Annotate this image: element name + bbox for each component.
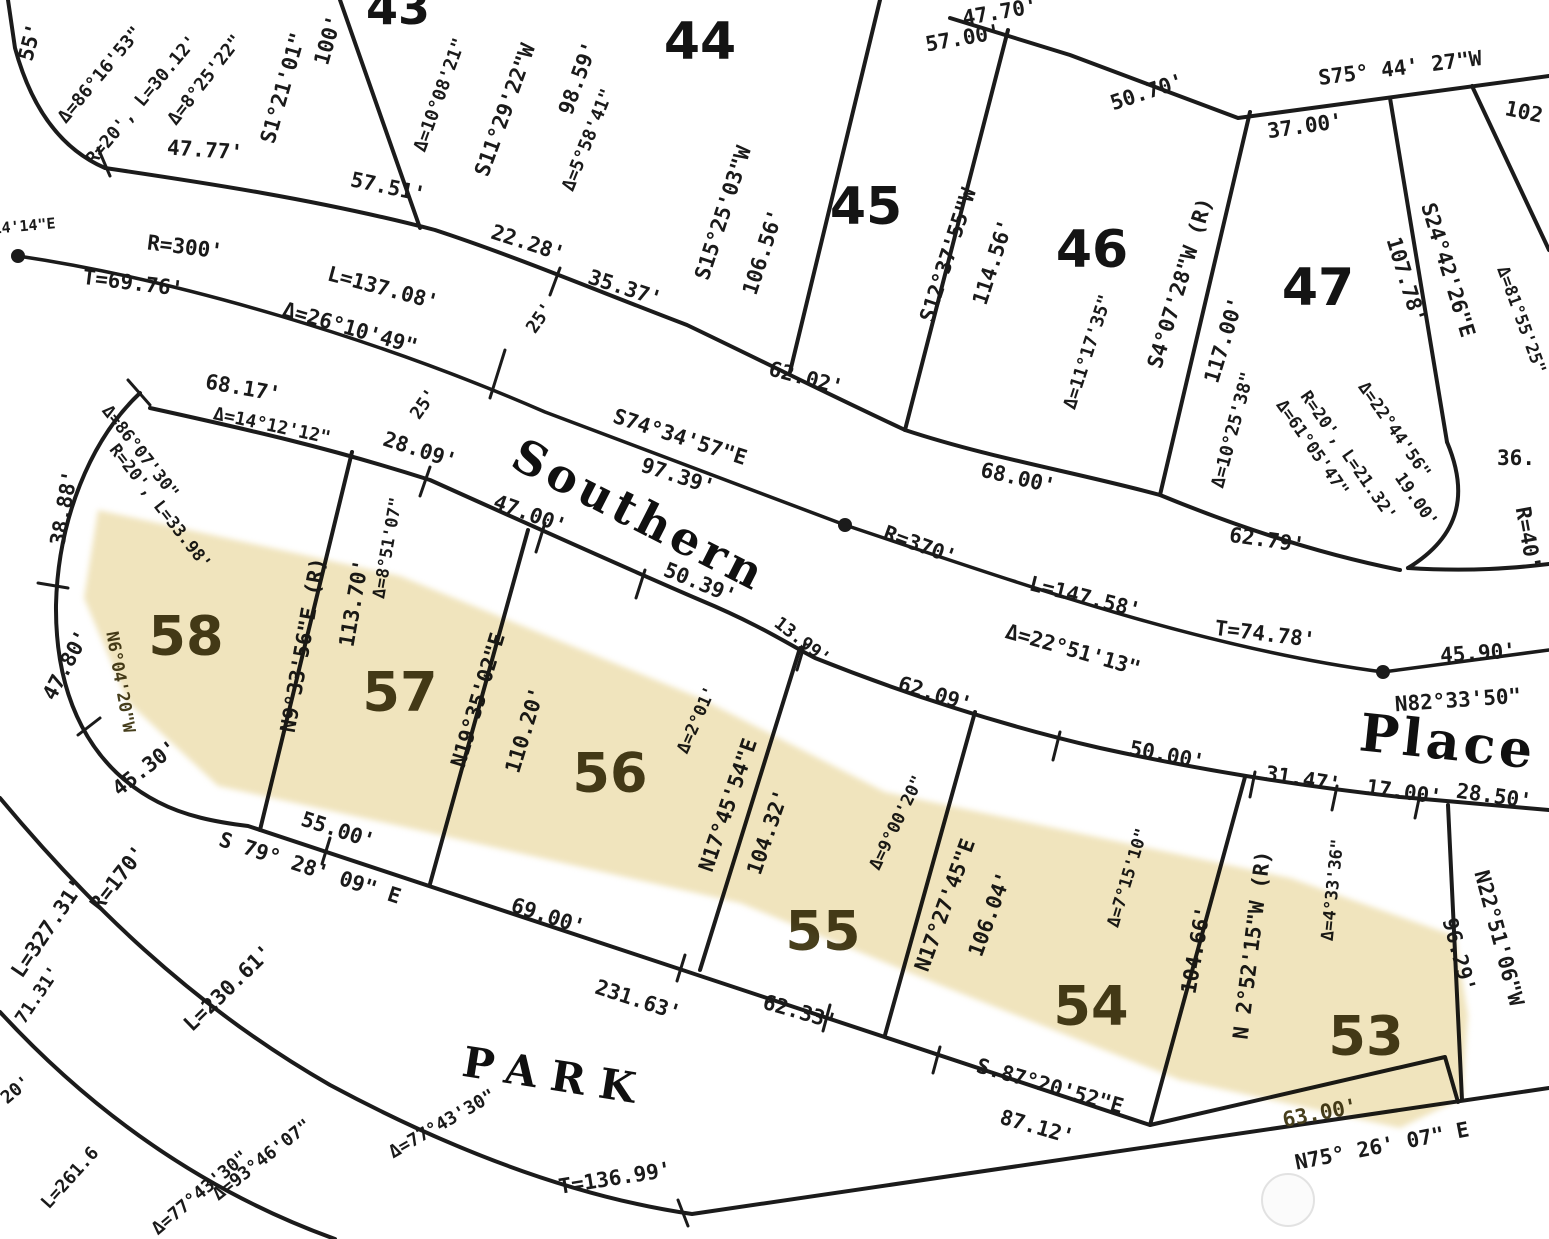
distance-label: 20' (0, 1072, 35, 1109)
distance-label: 68.17' (204, 370, 283, 407)
lot-number-47: 47 (1282, 258, 1354, 318)
distance-label: 106.56' (738, 206, 788, 298)
distance-label: 38.88' (46, 469, 83, 548)
curve-delta-label: Δ=22°51'13" (1003, 619, 1143, 680)
curve-data-label: L=230.61' (179, 940, 278, 1036)
curve-delta-label: Δ=26°10'49" (280, 297, 420, 358)
curve-delta-label: Δ=77°43'30" (385, 1085, 499, 1163)
curve-point-dot (838, 518, 852, 532)
bearing-label: S12°37'55"W (915, 185, 981, 325)
street-name: Place (1357, 702, 1540, 781)
distance-label: 231.63' (592, 975, 684, 1025)
distance-label: 28.50' (1455, 779, 1533, 813)
distance-label: 87.12' (997, 1105, 1077, 1149)
distance-label: 17.00' (1365, 775, 1443, 809)
curve-data-label: R=40' (1511, 505, 1546, 571)
scan-notch (1505, 895, 1549, 958)
curve-data-label: T=136.99' (557, 1157, 673, 1199)
distance-label: 57.51' (348, 167, 427, 206)
curve-data-label: L=137.08' (325, 262, 441, 315)
distance-label: 68.00' (978, 458, 1057, 498)
curve-delta-label: Δ=14°12'12" (212, 403, 333, 448)
curve-data-label: L=147.58' (1027, 572, 1143, 623)
plat-map-page: 55'Δ=86°16'53"R=20', L=30.12'Δ=8°25'22"S… (0, 0, 1549, 1239)
distance-label: 50.00' (1127, 736, 1206, 774)
distance-label: 45.90' (1439, 638, 1516, 667)
distance-label: 50.70' (1107, 69, 1187, 115)
watermark-circle (1262, 1174, 1314, 1226)
curve-data-label: R=370' (880, 521, 959, 569)
distance-label: 14'14"E (0, 214, 56, 237)
distance-label: 62.02' (766, 357, 845, 400)
curve-point-dot (1376, 665, 1390, 679)
distance-label: 45.30' (108, 735, 183, 801)
distance-label: 25' (406, 385, 442, 424)
distance-label: 62.09' (895, 671, 975, 716)
distance-label: 47.77' (166, 135, 243, 164)
bearing-label: S1°21'01" (256, 30, 310, 146)
distance-label: 35.37' (585, 265, 665, 311)
curve-delta-label: Δ=11°17'35" (1060, 292, 1117, 412)
curve-data-label: T=69.76' (81, 265, 184, 301)
lot-number-46: 46 (1056, 220, 1128, 280)
curve-delta-label: Δ=81°55'25" (1492, 264, 1549, 377)
bearing-label: S.87°20'52"E (974, 1054, 1126, 1119)
curve-delta-label: Δ=10°08'21" (410, 35, 471, 154)
curve-data-label: T=74.78' (1213, 616, 1316, 652)
distance-label: 57.00' (924, 20, 1003, 57)
bearing-label: S75° 44' 27"W (1317, 46, 1483, 90)
distance-label: 100' (309, 12, 346, 67)
curve-point-dot (11, 249, 25, 263)
distance-label: 102 (1503, 96, 1545, 127)
bearing-label: S11°29'22"W (470, 40, 540, 179)
bearing-label: N75° 26' 07" E (1293, 1117, 1471, 1174)
distance-label: 31.47' (1264, 761, 1343, 797)
lot-number-43: 43 (366, 0, 430, 35)
distance-label: 22.28' (488, 220, 568, 266)
plat-map: 55'Δ=86°16'53"R=20', L=30.12'Δ=8°25'22"S… (0, 0, 1549, 1239)
distance-label: 69.00' (508, 893, 588, 939)
curve-data-label: R=170' (85, 841, 151, 916)
distance-label: 13.99' (770, 613, 834, 670)
lot-number-45: 45 (830, 177, 902, 237)
distance-label: 62.33' (760, 990, 840, 1034)
bearing-label: S4°07'28"W (R) (1143, 195, 1218, 371)
curve-data-label: R=300' (146, 230, 224, 263)
curve-delta-label: Δ=10°25'38" (1207, 370, 1258, 491)
lot-number-44: 44 (664, 12, 736, 72)
distance-label: 36. (1497, 446, 1535, 470)
distance-label: 62.79' (1228, 523, 1306, 557)
bearing-label: S15°25'03"W (690, 143, 756, 283)
distance-label: 55' (13, 21, 46, 64)
curve-data-label: L=261.6 (37, 1143, 103, 1213)
distance-label: 107.78' (1382, 234, 1431, 326)
distance-label: 114.56' (968, 216, 1018, 308)
lot-highlight-band (84, 510, 1468, 1128)
distance-label: 25' (522, 299, 558, 338)
bearing-label: S74°34'57"E (610, 404, 750, 470)
